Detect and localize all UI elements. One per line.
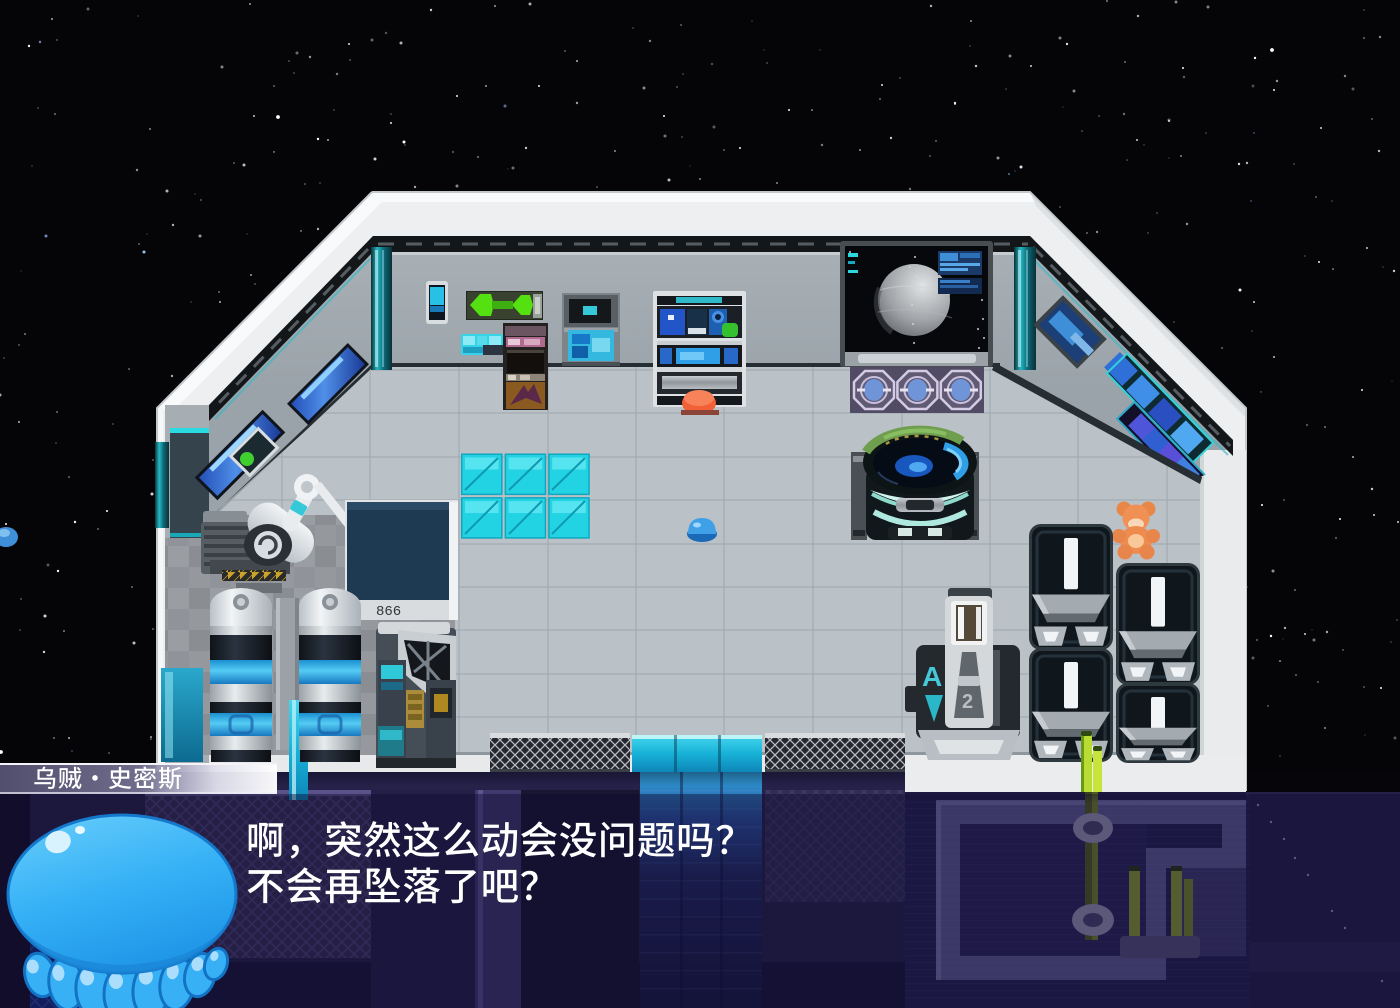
svg-text:A: A	[922, 661, 942, 692]
svg-text:2: 2	[962, 691, 973, 713]
svg-text:866: 866	[376, 604, 401, 620]
